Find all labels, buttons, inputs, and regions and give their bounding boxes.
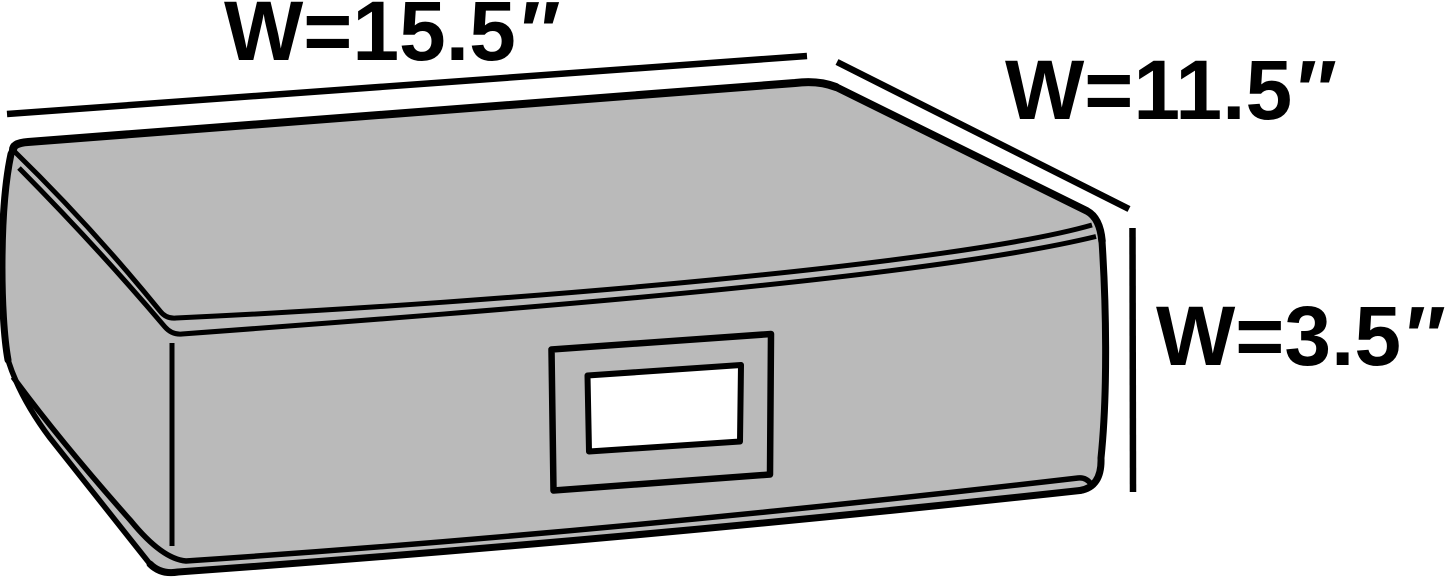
svg-text:W=3.5″: W=3.5″ bbox=[1156, 289, 1445, 383]
svg-text:W=11.5″: W=11.5″ bbox=[1005, 43, 1336, 137]
svg-text:W=15.5″: W=15.5″ bbox=[224, 0, 560, 78]
